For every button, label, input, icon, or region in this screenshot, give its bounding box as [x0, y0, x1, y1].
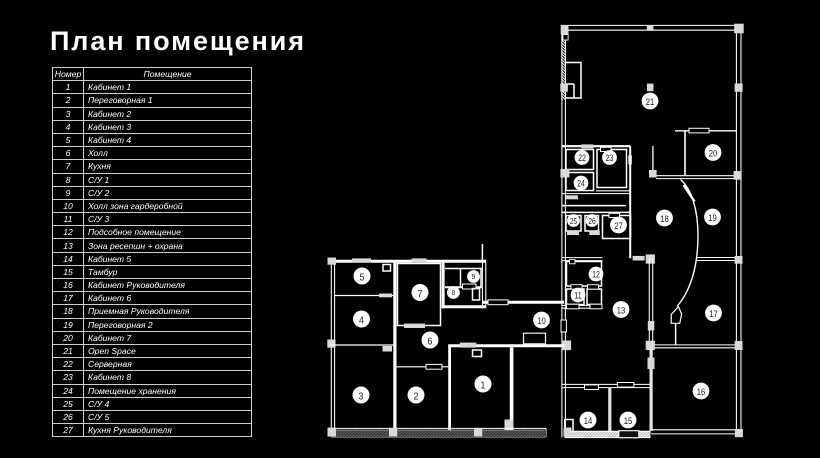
svg-text:9: 9	[472, 273, 476, 281]
svg-text:17: 17	[709, 308, 718, 319]
svg-text:1: 1	[481, 379, 486, 391]
svg-text:27: 27	[614, 220, 623, 231]
svg-text:26: 26	[588, 216, 595, 226]
svg-text:24: 24	[577, 179, 585, 189]
svg-text:22: 22	[578, 153, 586, 163]
svg-text:16: 16	[697, 386, 706, 397]
svg-text:7: 7	[418, 287, 423, 299]
svg-text:4: 4	[359, 314, 364, 326]
svg-text:2: 2	[414, 390, 419, 402]
svg-text:14: 14	[584, 415, 593, 426]
svg-text:8: 8	[452, 289, 456, 297]
svg-text:5: 5	[360, 271, 365, 283]
svg-text:15: 15	[624, 415, 633, 426]
svg-text:23: 23	[606, 153, 614, 163]
svg-text:3: 3	[359, 390, 364, 402]
svg-text:25: 25	[570, 216, 577, 226]
svg-text:11: 11	[574, 291, 582, 301]
svg-text:6: 6	[428, 335, 433, 347]
svg-text:21: 21	[646, 96, 655, 107]
svg-text:13: 13	[617, 305, 626, 316]
svg-text:18: 18	[660, 213, 669, 224]
svg-text:20: 20	[709, 148, 718, 159]
svg-text:10: 10	[537, 315, 546, 326]
svg-text:12: 12	[592, 270, 600, 280]
svg-text:19: 19	[708, 212, 717, 223]
